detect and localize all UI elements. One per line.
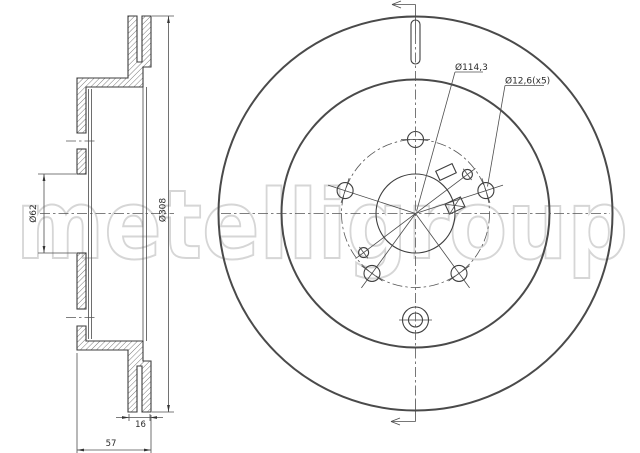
thickness-dimension: 16 [116,414,163,430]
arrowhead [167,405,170,412]
thickness-label: 16 [135,420,146,430]
height-label: 57 [106,439,117,449]
watermark-text: metelligroup [16,171,628,281]
bolt-hole-label: Ø12,6(x5) [505,76,550,87]
pcd-label: Ø114,3 [455,62,488,73]
arrowhead [167,16,170,23]
bolt-hole-annotation: Ø12,6(x5) [488,76,551,187]
outer-diameter-label: Ø308 [158,198,169,223]
brake-disc-technical-drawing: metelligroup Ø62 [0,0,640,453]
section-arrow-bottom [391,400,416,425]
bore-dimension-label: Ø62 [28,204,39,223]
arrowhead [144,449,151,452]
height-dimension: 57 [77,353,151,453]
arrowhead [77,449,84,452]
hub-wall-lower [77,253,86,309]
watermark: metelligroup [16,171,628,281]
arrowhead [122,416,129,419]
hub-wall-upper [77,149,86,174]
